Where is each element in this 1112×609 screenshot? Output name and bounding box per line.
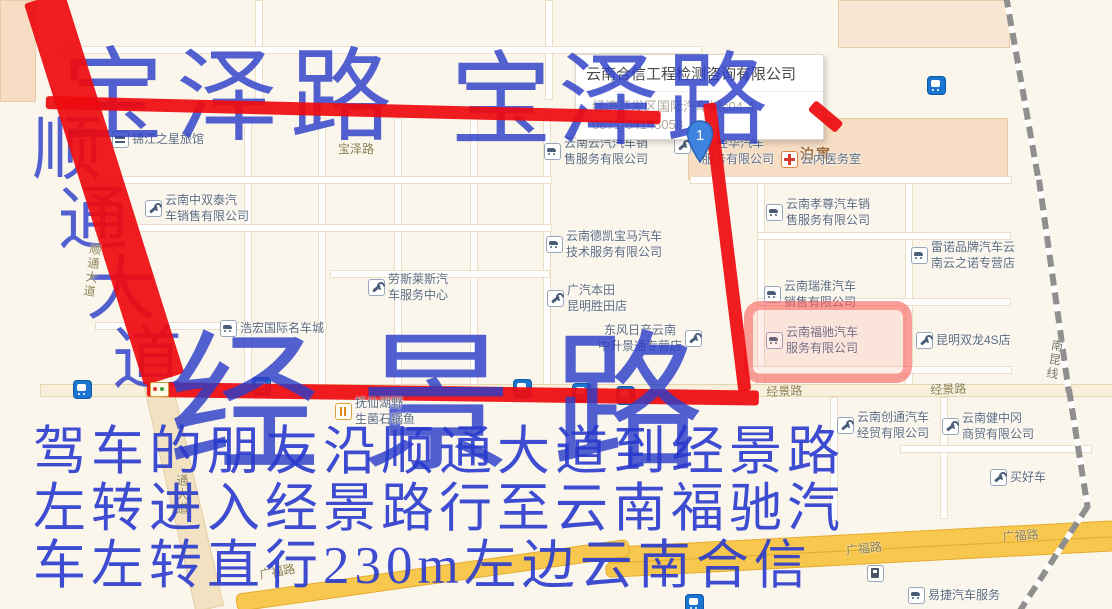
poi-label: 劳斯莱斯汽 <box>388 272 448 286</box>
poi-label: 经贸有限公司 <box>857 426 929 440</box>
poi-label: 云南瑞淮汽车 <box>784 279 856 293</box>
wrench-icon <box>942 418 959 435</box>
poi-dekai-bmw[interactable]: 云南德凯宝马汽车 技术服务有限公司 <box>546 228 662 260</box>
poi-yijie[interactable]: 易捷汽车服务 <box>908 587 1000 604</box>
poi-shuanglong[interactable]: 昆明双龙4S店 <box>916 332 1011 349</box>
poi-label: 易捷汽车服务 <box>928 587 1000 603</box>
poi-label: 买好车 <box>1010 469 1046 485</box>
wrench-icon <box>145 200 162 217</box>
poi-label: 云南德凯宝马汽车 <box>566 229 662 243</box>
railway-line <box>1014 505 1090 609</box>
bus-stop-icon[interactable] <box>927 76 946 95</box>
road <box>690 176 1012 184</box>
poi-jianzhonggang[interactable]: 云南健中冈 商贸有限公司 <box>942 410 1034 442</box>
location-pin-icon[interactable]: 1 <box>686 120 714 169</box>
road <box>95 224 552 232</box>
annotation-directions: 驾车的朋友沿顺通大道到经景路 左转进入经景路行至云南福驰汽 车左转直行230m左… <box>33 424 845 595</box>
poi-yunnei-clinic[interactable]: 云内医务室 <box>781 151 861 168</box>
wrench-icon <box>368 279 385 296</box>
poi-label: 车销售有限公司 <box>165 209 249 223</box>
poi-zhongshuangtai[interactable]: 云南中双泰汽 车销售有限公司 <box>145 192 249 224</box>
poi-label: 昆明双龙4S店 <box>936 332 1011 348</box>
poi-label: 云南中双泰汽 <box>165 193 237 207</box>
map-block <box>838 0 1010 48</box>
road <box>95 176 552 184</box>
traffic-light-icon <box>150 382 169 397</box>
poi-label: 云南健中冈 <box>962 411 1022 425</box>
wrench-icon <box>916 332 933 349</box>
directions-line-1: 驾车的朋友沿顺通大道到经景路 <box>33 424 845 481</box>
poi-chuangtong[interactable]: 云南创通汽车 经贸有限公司 <box>837 409 929 441</box>
wrench-icon <box>547 290 564 307</box>
road-label-jingjing: 经景路 <box>766 382 803 400</box>
poi-label: 雷诺品牌汽车云 <box>931 240 1015 254</box>
directions-line-3: 车左转直行230m左边云南合信 <box>33 538 845 595</box>
bus-stop-icon[interactable] <box>73 380 92 399</box>
poi-label: 车服务中心 <box>388 288 448 302</box>
road-label-jingjing: 经景路 <box>930 380 967 398</box>
pin-number: 1 <box>696 127 704 144</box>
medical-cross-icon <box>781 151 798 168</box>
poi-label: 技术服务有限公司 <box>566 245 662 259</box>
road-label-guangfu: 广福路 <box>1002 525 1039 544</box>
poi-label: 南云之诺专营店 <box>931 256 1015 270</box>
gas-station-icon[interactable] <box>867 565 884 582</box>
poi-guangqi-honda[interactable]: 广汽本田 昆明胜田店 <box>547 282 627 314</box>
poi-label: 广汽本田 <box>567 283 615 297</box>
road <box>900 445 1092 453</box>
map-stage: 宝泽路 经景路 经景路 广福路 广福路 广福路 南昆线 通大道 顺通大道 锦江之… <box>0 0 1112 609</box>
poi-laosilaisi[interactable]: 劳斯莱斯汽 车服务中心 <box>368 271 448 303</box>
wrench-icon <box>990 469 1007 486</box>
poi-label: 云内医务室 <box>801 151 861 167</box>
poi-label: 云南孝尊汽车销 <box>786 197 870 211</box>
car-icon <box>908 587 925 604</box>
car-icon <box>546 236 563 253</box>
railway-line <box>1003 0 1042 183</box>
highlight-box-fuchi <box>744 301 912 383</box>
poi-label: 抚仙湖野 <box>355 396 403 410</box>
directions-line-2: 左转进入经景路行至云南福驰汽 <box>33 481 845 538</box>
bus-stop-icon[interactable] <box>685 594 704 609</box>
annotation-baoze-right: 宝泽路 <box>450 52 774 154</box>
poi-leinuo[interactable]: 雷诺品牌汽车云 南云之诺专营店 <box>911 239 1015 271</box>
restaurant-icon <box>335 403 352 420</box>
car-icon <box>911 247 928 264</box>
poi-label: 商贸有限公司 <box>962 427 1034 441</box>
car-icon <box>766 204 783 221</box>
poi-label: 昆明胜田店 <box>567 299 627 313</box>
poi-xiaozun[interactable]: 云南孝尊汽车销 售服务有限公司 <box>766 196 870 228</box>
poi-label: 售服务有限公司 <box>786 213 870 227</box>
poi-label: 云南创通汽车 <box>857 410 929 424</box>
poi-maihaoche[interactable]: 买好车 <box>990 469 1046 486</box>
